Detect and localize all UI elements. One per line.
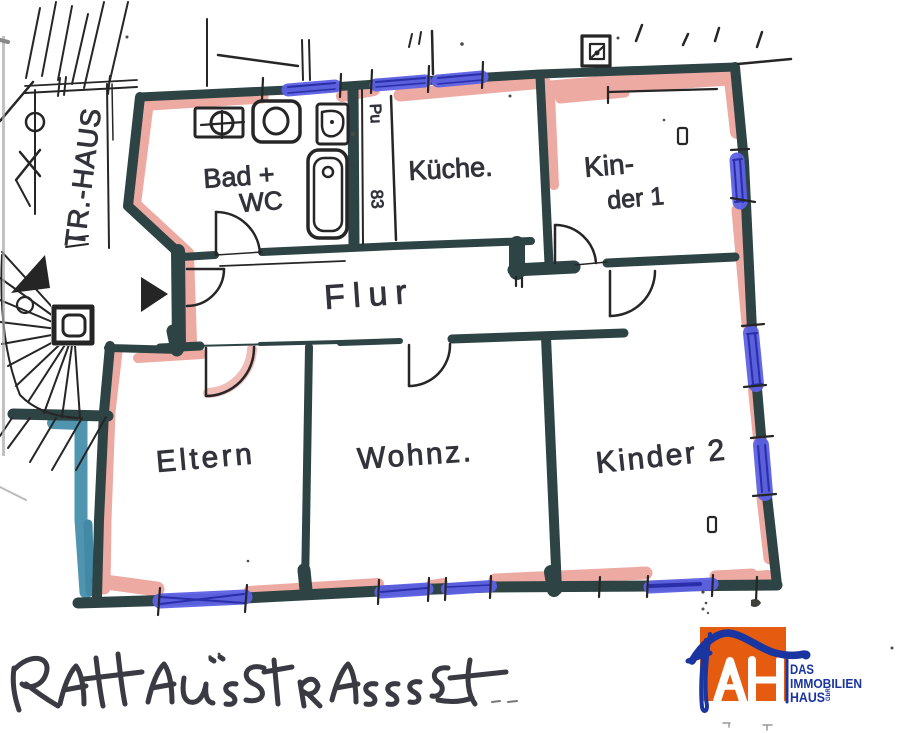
svg-text:Kin-: Kin- [583,148,635,183]
svg-text:Wohnz.: Wohnz. [356,435,474,476]
svg-text:Flur: Flur [323,273,416,317]
svg-text:Pu: Pu [366,103,384,123]
svg-text:TR.-HAUS: TR.-HAUS [59,106,107,249]
svg-text:DAS: DAS [790,661,814,677]
svg-text:der 1: der 1 [606,182,665,215]
svg-text:Eltern: Eltern [155,437,257,479]
svg-text:HAUS: HAUS [790,689,825,705]
svg-text:Kinder 2: Kinder 2 [594,433,728,480]
svg-text:Küche.: Küche. [408,152,494,186]
svg-text:GbR: GbR [826,688,832,701]
svg-text:83: 83 [367,189,387,209]
svg-text:WC: WC [238,185,283,218]
